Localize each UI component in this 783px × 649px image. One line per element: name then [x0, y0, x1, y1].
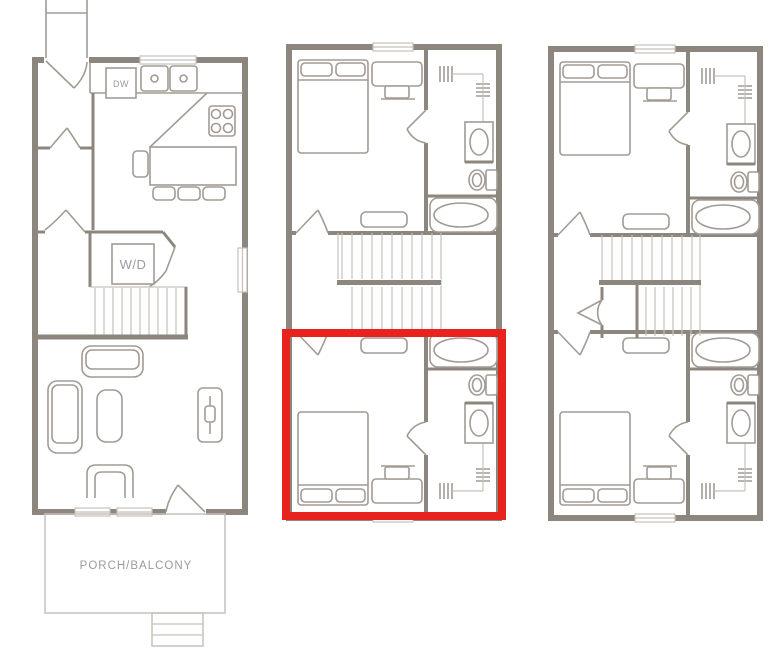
floorplan-drawing: DW — [0, 0, 783, 649]
kitchen-sink — [141, 66, 197, 91]
loveseat — [82, 346, 143, 377]
kitchen: DW — [90, 63, 243, 200]
washer-dryer-label: W/D — [120, 257, 147, 272]
floorplan-third-floor — [551, 45, 761, 522]
dishwasher-label: DW — [113, 79, 129, 89]
ottoman — [97, 390, 122, 442]
porch-door-opening — [166, 507, 206, 517]
second-floor-upper-suite — [289, 43, 499, 233]
living-room — [48, 346, 222, 512]
floorplan-first-floor: DW — [35, 0, 247, 646]
porch-balcony: PORCH/BALCONY — [45, 514, 225, 646]
entry-door — [46, 0, 87, 88]
staircase-second-floor — [337, 233, 441, 330]
accent-chair — [87, 465, 133, 498]
third-floor-upper-suite — [551, 45, 761, 235]
laundry-closet: W/D — [85, 232, 175, 287]
floorplan-page: DW — [0, 0, 783, 649]
hall-closets — [35, 93, 93, 232]
dishwasher: DW — [106, 68, 136, 98]
staircase-third-floor — [578, 235, 701, 338]
porch-steps — [152, 613, 203, 646]
sectional-sofa — [48, 381, 82, 453]
double-swing-door — [578, 300, 602, 325]
floorplan-second-floor — [289, 43, 499, 522]
cooktop — [209, 106, 235, 136]
third-floor-lower-suite — [551, 332, 761, 522]
kitchen-island — [150, 147, 236, 185]
media-console — [198, 388, 222, 442]
second-floor-lower-suite — [289, 332, 499, 522]
bar-stools — [153, 187, 225, 200]
entry-opening — [44, 55, 89, 65]
dining-chair — [133, 151, 148, 177]
staircase-first-floor — [35, 287, 188, 337]
counter-diagonal — [150, 93, 207, 147]
porch-label: PORCH/BALCONY — [80, 560, 193, 572]
